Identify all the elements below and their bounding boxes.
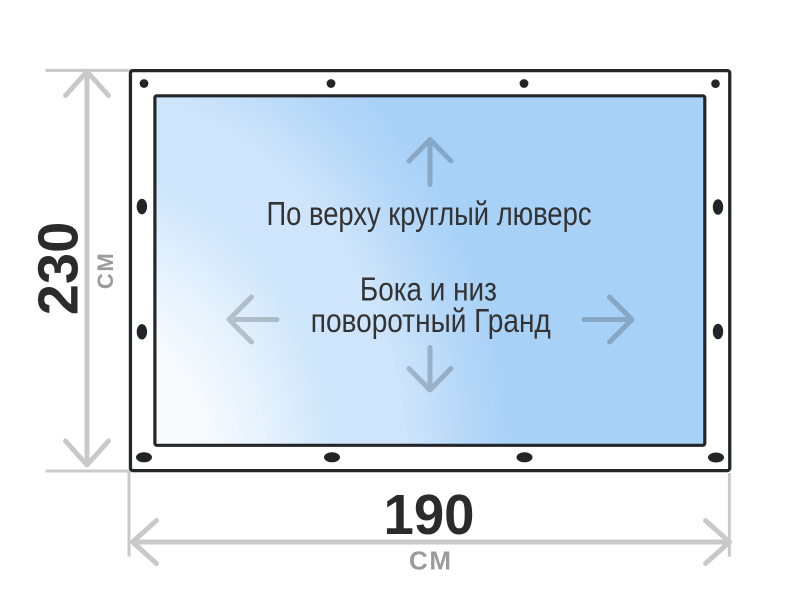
- svg-text:СМ: СМ: [93, 251, 118, 289]
- svg-text:230: 230: [27, 222, 91, 316]
- svg-text:поворотный Гранд: поворотный Гранд: [311, 302, 551, 339]
- svg-text:СМ: СМ: [409, 545, 453, 575]
- svg-text:По верху круглый люверс: По верху круглый люверс: [267, 195, 592, 232]
- svg-text:190: 190: [384, 483, 475, 547]
